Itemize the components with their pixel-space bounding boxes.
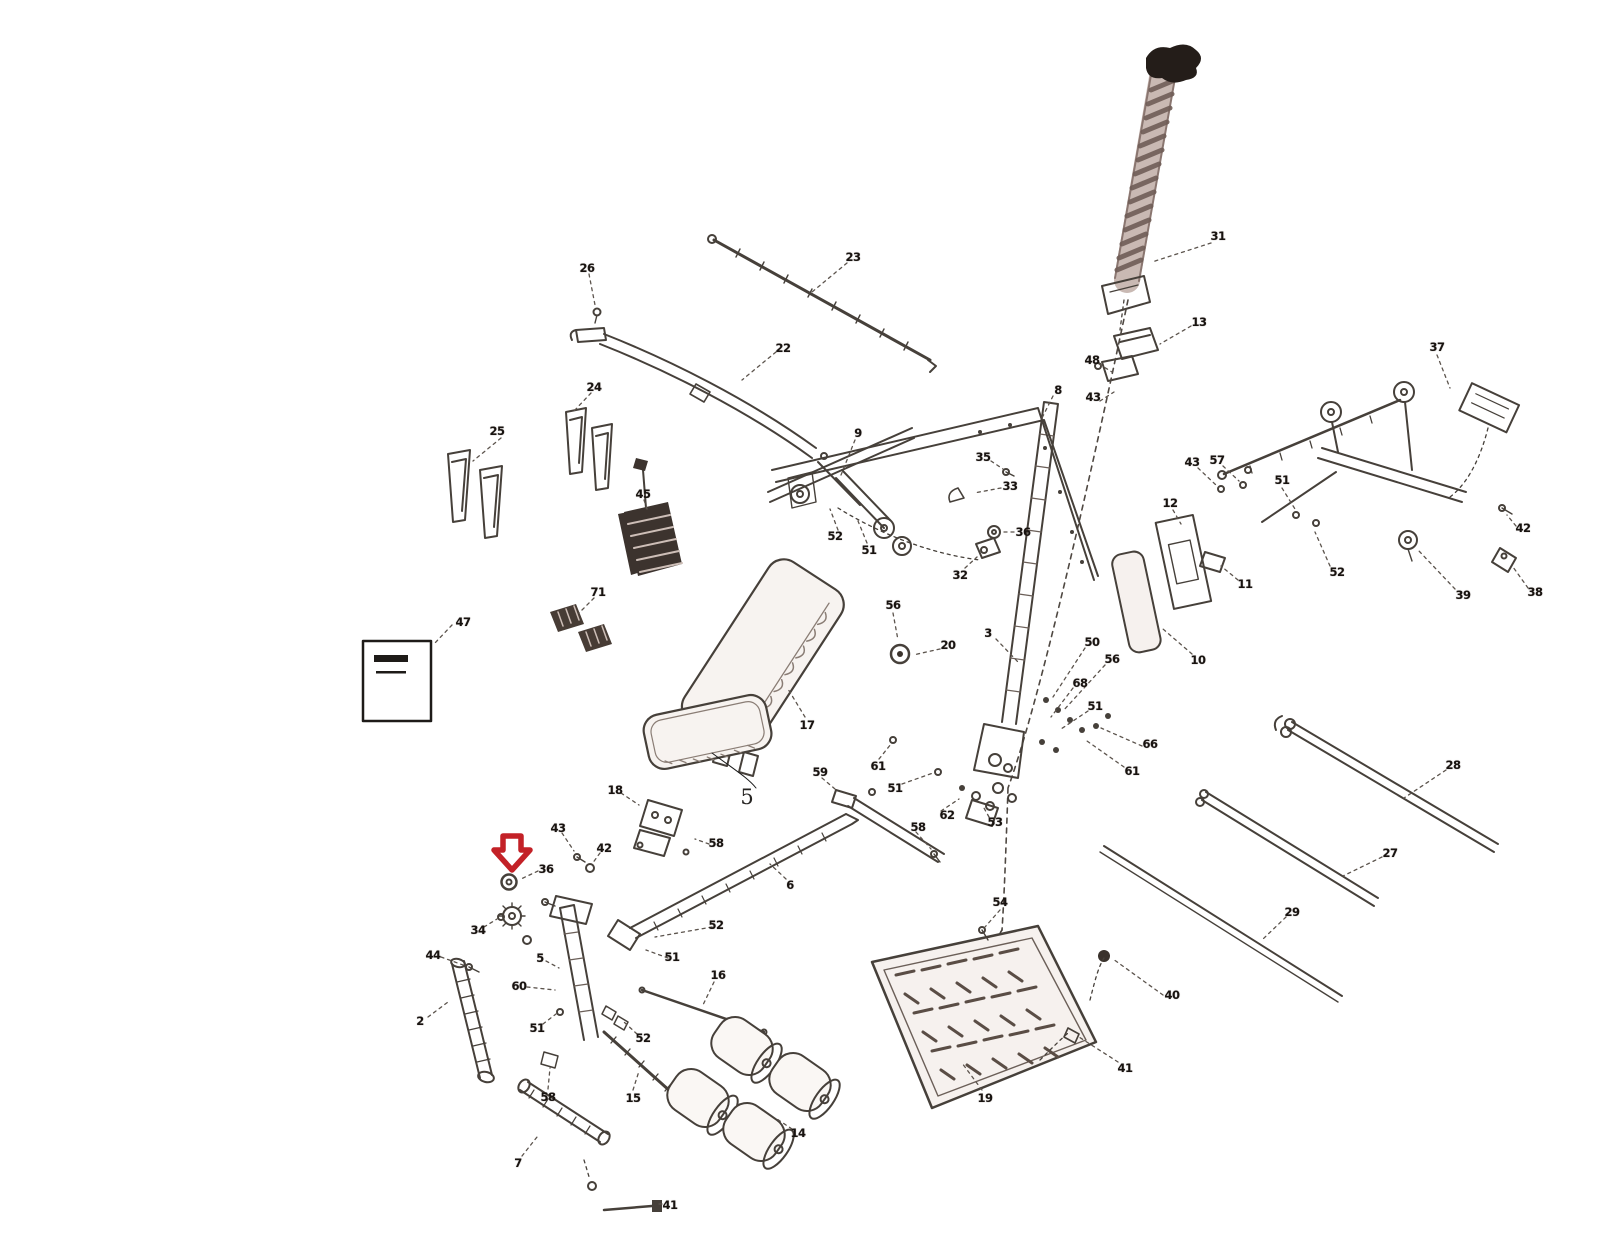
seat-pad-part xyxy=(641,692,775,773)
foot-platform-part xyxy=(872,926,1110,1108)
resistance-clip-stack-part xyxy=(618,458,682,576)
exploded-diagram-page: 3113484382322262425457147935333632525132… xyxy=(0,0,1600,1256)
diagram-line-art xyxy=(0,0,1600,1256)
highlight-arrow-icon xyxy=(494,836,530,870)
press-arm-part xyxy=(768,428,980,560)
warning-placard-part xyxy=(363,641,431,721)
roller-frame-part xyxy=(1218,382,1519,526)
handwritten-part-label: 5 xyxy=(740,785,753,809)
foam-rollers-part xyxy=(660,1010,845,1173)
main-column-part xyxy=(966,402,1058,826)
spring-part xyxy=(1102,44,1201,330)
